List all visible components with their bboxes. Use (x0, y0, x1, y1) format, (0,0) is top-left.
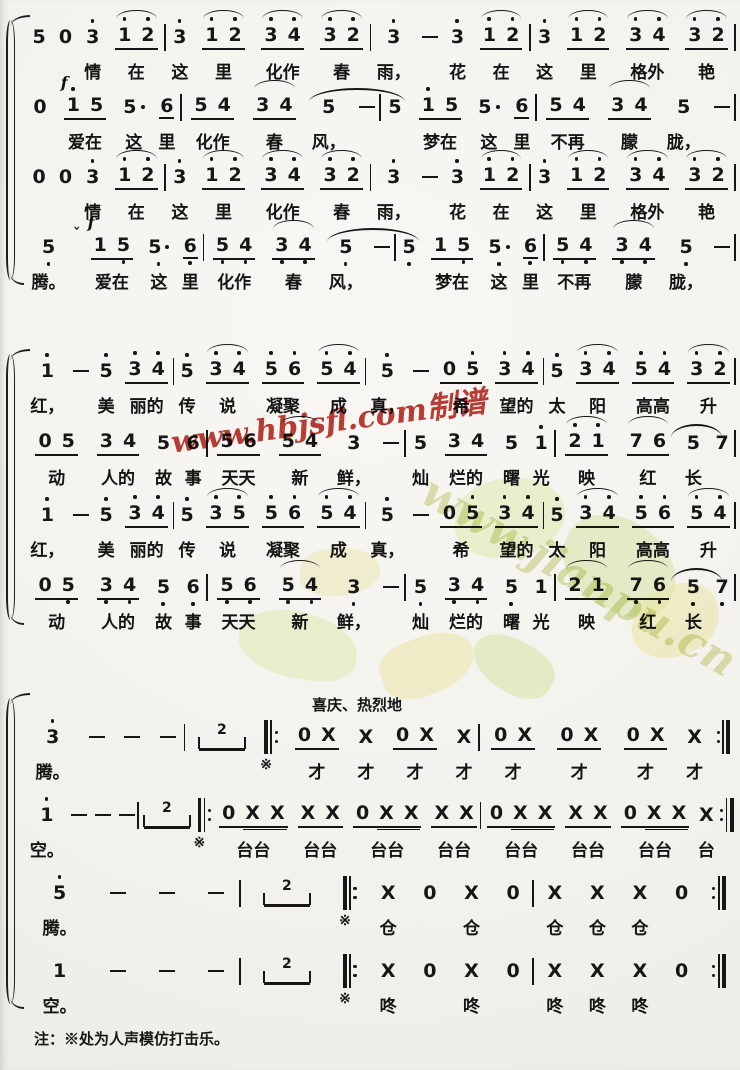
note: 4 (151, 358, 166, 380)
measure: 54不再34朦5胧， (537, 86, 736, 152)
note: 3 (99, 430, 114, 452)
lyric-syllable: 胧， (667, 128, 701, 152)
note-slot: 05动 (26, 566, 87, 632)
measure: 5传34说56凝聚54成 (174, 350, 366, 416)
note-slot: ※ (258, 716, 283, 782)
note-slot: 5美 (93, 350, 119, 416)
note-slot: 54成 (311, 350, 366, 416)
lyric-syllable: 台台 (303, 836, 337, 860)
note-slot: X才 (679, 716, 711, 782)
note: X (646, 802, 663, 824)
measure: 5真，05希34望的 (366, 350, 544, 416)
note: 6 (287, 358, 302, 380)
octave-dot-above (328, 17, 332, 21)
note: 1 (204, 24, 219, 46)
note: 3 (628, 24, 643, 46)
note: 4 (638, 234, 653, 256)
octave-dot-above (543, 159, 547, 163)
note: 4 (602, 502, 617, 524)
staff-line-2-2: 05动34人的5故6事56天天54新3鲜，5灿34烂的5曙1光21映76红5长7 (26, 422, 736, 488)
note: 0 (559, 724, 574, 746)
note: 2 (592, 164, 607, 186)
lyric-syllable: 咚 (589, 992, 606, 1016)
note-slot: 2 (241, 872, 333, 938)
note-slot: 1红， (26, 350, 69, 416)
note: 5 (444, 94, 459, 116)
note: 4 (657, 358, 672, 380)
note: 3 (689, 358, 704, 380)
beam-group: 54 (632, 358, 674, 384)
octave-dot-above (663, 495, 667, 499)
augmentation-dot (141, 105, 145, 109)
octave-dot-above (716, 157, 720, 161)
measure: 3雨，3花12在 (371, 16, 530, 82)
note-slot: 1光 (526, 566, 556, 632)
note-slot: 0X才 (382, 716, 448, 782)
octave-dot-below (248, 600, 252, 604)
staff-line-3-3: 5腾。2※X仓0X仓0X仓X仓X仓0 (26, 872, 736, 938)
note: X (433, 802, 450, 824)
beam-group-slurred: 34 (206, 358, 248, 384)
continuation-dash (159, 970, 175, 973)
beam-group-slurred: 34 (626, 164, 668, 190)
lyric-syllable: 里 (215, 198, 232, 222)
note: X (516, 724, 533, 746)
note: 2 (505, 24, 520, 46)
note: 4 (304, 574, 319, 596)
lyric-syllable: 太 (548, 392, 565, 416)
note-slot (192, 950, 241, 1016)
note: 7 (629, 430, 644, 452)
lyric-syllable: 台台 (437, 836, 471, 860)
beam-group: 0XX (621, 802, 690, 828)
note: 3 (610, 94, 625, 116)
note: 6 (185, 576, 200, 598)
octave-dot-below (691, 602, 695, 606)
note: 4 (578, 234, 593, 256)
octave-dot-below (509, 602, 513, 606)
note: 3 (386, 166, 401, 188)
note: X (671, 802, 688, 824)
note: 1 (117, 24, 132, 46)
beam-group: 0X (557, 724, 601, 750)
lyric-syllable: 台台 (236, 836, 270, 860)
lyric-syllable: 新 (291, 464, 308, 488)
note-slot: 5这 (471, 86, 507, 152)
note: 3 (450, 166, 465, 188)
octave-dot-above (328, 157, 332, 161)
note-slot (409, 494, 434, 560)
lyric-syllable: 这 (480, 128, 497, 152)
note: 5 (122, 96, 145, 118)
note: 4 (278, 94, 293, 116)
lyric-syllable: 真， (370, 536, 404, 560)
note-slot: 54新 (269, 422, 330, 488)
score: 503情12在3这12里34化作32春3雨，3花12在3这12里34格外32艳0… (0, 0, 740, 1016)
note: 5 (61, 430, 76, 452)
rest-count: 2 (282, 879, 292, 893)
note: 5 (549, 360, 564, 382)
octave-dot-above (348, 495, 352, 499)
measure: 0X才0X才0X才X才 (480, 716, 736, 782)
beam-group-slurred: 12 (202, 164, 244, 190)
lyric-syllable: 说 (219, 536, 236, 560)
note-slot (711, 716, 736, 782)
octave-dot-below (643, 260, 647, 264)
note: 0 (37, 574, 52, 596)
note-slot: 2 (185, 716, 258, 782)
note: 2 (227, 24, 242, 46)
octave-dot-above (293, 495, 297, 499)
note: 0 (297, 724, 312, 746)
note: 5 (41, 236, 56, 258)
note: 1 (93, 234, 108, 256)
note: 0 (623, 802, 638, 824)
note: 1 (533, 576, 548, 598)
note: 0 (58, 166, 73, 188)
measure: 1空。 (26, 950, 241, 1016)
octave-dot-below (658, 600, 662, 604)
note-slot: 34望的 (489, 494, 544, 560)
lyric-syllable: 长 (685, 464, 702, 488)
note: 5 (456, 234, 471, 256)
note: 5 (548, 94, 563, 116)
octave-dot-above (693, 17, 697, 21)
octave-dot-above (695, 351, 699, 355)
lyric-syllable: 烂的 (449, 608, 483, 632)
octave-dot-above (503, 351, 507, 355)
lyric-syllable: 凝聚 (266, 536, 300, 560)
beam-group: 0X (393, 724, 437, 750)
note: 0 (355, 802, 370, 824)
note: 5 (686, 432, 701, 454)
note: 5 (487, 236, 510, 258)
note: 5 (380, 504, 395, 526)
lyric-syllable: 里 (182, 268, 199, 292)
tempo-marking: 喜庆、热烈地 (312, 694, 736, 713)
reference-mark: ※ (194, 834, 206, 851)
lyric-syllable: 人的 (101, 464, 135, 488)
rest-count: 2 (162, 801, 172, 815)
music-system-3: 喜庆、热烈地3腾。2※0X才X才0X才X才0X才0X才0X才X才1空。2※0XX… (0, 694, 740, 1016)
note: 6 (514, 95, 529, 119)
note-slot: 35说 (200, 494, 255, 560)
note: 3 (127, 502, 142, 524)
octave-dot-below (221, 260, 225, 264)
note-slot: 0X才 (612, 716, 678, 782)
note-slot: 34阳 (570, 350, 625, 416)
lyric-syllable: 事 (185, 464, 202, 488)
staff-line-3-1: 3腾。2※0X才X才0X才X才0X才0X才0X才X才 (26, 716, 736, 782)
note: 5 (387, 96, 402, 118)
note-slot: 21映 (556, 422, 617, 488)
note-slot: 0XX台台 (615, 794, 695, 860)
note-slot (79, 716, 114, 782)
measure: 05动34人的5故6事 (26, 566, 208, 632)
note-slot: 7 (708, 422, 736, 488)
note-slot: 32艳 (677, 156, 736, 222)
octave-dot-above (210, 17, 214, 21)
beam-group: 0X (491, 724, 535, 750)
note: 5 (89, 94, 104, 116)
note: 5 (689, 502, 704, 524)
note-slot (352, 86, 381, 152)
beam-group: 54 (191, 94, 233, 120)
continuation-dash (89, 736, 105, 739)
lyric-syllable: 春 (285, 268, 302, 292)
measure: 5腾。ˇf15爱在5这6里 (26, 226, 204, 292)
beam-group-slurred: 12 (480, 24, 522, 50)
lyric-syllable: 人的 (101, 608, 135, 632)
octave-dot-above (178, 19, 182, 23)
lyric-syllable: 腾。 (43, 914, 77, 938)
lyric-syllable: 在 (128, 58, 145, 82)
lyric-syllable: 才 (456, 758, 473, 782)
lyric-syllable: 高高 (636, 536, 670, 560)
lyric-syllable: 这 (536, 198, 553, 222)
lyric-syllable: 台台 (571, 836, 605, 860)
note: 3 (85, 166, 100, 188)
lyric-syllable: 才 (505, 758, 522, 782)
note: X (686, 726, 703, 748)
note-slot: 3花 (443, 156, 471, 222)
beam-group: 05 (440, 358, 482, 384)
beam-group-slurred: 34 (261, 24, 303, 50)
measure: 3这12里34化作32春 (166, 16, 371, 82)
note: 2 (592, 24, 607, 46)
note: 5 (232, 502, 247, 524)
reference-mark: ※ (339, 990, 351, 1007)
note: 3 (263, 24, 278, 46)
octave-dot-below (310, 600, 314, 604)
sixteenth-subgroup: XX (512, 802, 553, 824)
continuation-dash (110, 970, 126, 973)
note: X (378, 802, 395, 824)
octave-dot-above (503, 495, 507, 499)
octave-dot-above (657, 157, 661, 161)
note-slot: 34望的 (489, 350, 544, 416)
rest-count: 2 (217, 723, 227, 737)
note: 6 (287, 502, 302, 524)
note: 5 (477, 96, 500, 118)
octave-dot-above (526, 495, 530, 499)
note: X (589, 960, 606, 982)
lyric-syllable: 雨， (377, 58, 411, 82)
note: 4 (217, 94, 232, 116)
note: 3 (450, 26, 465, 48)
note: 5 (413, 576, 428, 598)
note: 5 (264, 358, 279, 380)
note-slot (192, 872, 241, 938)
note-slot: 1空。 (26, 950, 93, 1016)
continuation-dash (383, 586, 399, 589)
octave-dot-above (351, 157, 355, 161)
note-slot: 1空。 (26, 794, 68, 860)
lyric-syllable: 台台 (370, 836, 404, 860)
note-slot: f15爱在 (82, 226, 141, 292)
note: 1 (40, 504, 55, 526)
note: 1 (433, 234, 448, 256)
continuation-dash (714, 106, 730, 109)
beam-group: 34 (125, 502, 167, 528)
note: 4 (651, 24, 666, 46)
note: 5 (678, 236, 693, 258)
continuation-dash (383, 442, 399, 445)
note: 3 (578, 358, 593, 380)
octave-dot-above (639, 495, 643, 499)
note-slot: X咚 (534, 950, 577, 1016)
beam-group: 05 (35, 574, 77, 600)
note: 4 (342, 358, 357, 380)
note-slot: 34朦 (599, 86, 661, 152)
measure: 5太34阳54高高32升 (544, 350, 736, 416)
note: X (632, 960, 649, 982)
note-slot: 5胧， (660, 86, 707, 152)
note-slot: XX台台 (427, 794, 481, 860)
continuation-dash (208, 892, 224, 895)
octave-dot-below (66, 600, 70, 604)
note: 3 (537, 26, 552, 48)
octave-dot-above (639, 351, 643, 355)
beam-group: XX (431, 802, 476, 828)
note-slot: 6事 (178, 422, 208, 488)
measure: 5灿34烂的5曙1光 (406, 422, 556, 488)
note-slot: 3雨， (371, 156, 416, 222)
note: 5 (555, 234, 570, 256)
note-slot (409, 350, 434, 416)
lyric-syllable: 春 (266, 128, 283, 152)
octave-dot-above (292, 17, 296, 21)
lyric-syllable: 这 (491, 268, 508, 292)
note-slot: 5灿 (406, 422, 436, 488)
multimeasure-rest: 2 (264, 957, 310, 985)
note-slot: 5腾。 (26, 872, 93, 938)
note: X (456, 726, 473, 748)
octave-dot-above (348, 351, 352, 355)
lyric-syllable: 美 (98, 392, 115, 416)
note-slot: ※ (195, 794, 213, 860)
note: 4 (651, 164, 666, 186)
octave-dot-above (237, 351, 241, 355)
beam-group: 34 (97, 574, 139, 600)
beam-group: 54 (553, 234, 595, 260)
note-slot: 5美 (93, 494, 119, 560)
note-slot: 12在 (472, 16, 531, 82)
octave-dot-above (607, 495, 611, 499)
measure: 54化作34春5风， (204, 226, 395, 292)
note: 5 (32, 26, 47, 48)
measure: ※X咚0X咚0 (333, 950, 534, 1016)
octave-dot-above (91, 19, 95, 23)
octave-dot-above (269, 351, 273, 355)
reference-mark: ※ (260, 756, 272, 773)
note: 4 (470, 430, 485, 452)
beam-group: 54 (213, 234, 255, 260)
note: 5 (179, 504, 194, 526)
octave-dot-above (695, 495, 699, 499)
note: 3 (172, 26, 187, 48)
note: X (537, 802, 554, 824)
note: 5 (215, 234, 230, 256)
measure: 54不再34朦5胧， (545, 226, 736, 292)
beam-group: 34 (495, 358, 537, 384)
note: 4 (151, 502, 166, 524)
note-slot: 3鲜， (331, 566, 378, 632)
note-slot (115, 716, 150, 782)
measure: 0f15爱在5这6里 (26, 86, 182, 152)
augmentation-dot (496, 105, 500, 109)
lyric-syllable: 台台 (638, 836, 672, 860)
note-slot: 34烂的 (435, 422, 496, 488)
lyric-syllable: 动 (48, 608, 65, 632)
note-slot: 0 (52, 156, 78, 222)
note: 5 (504, 432, 519, 454)
note: 0 (442, 502, 457, 524)
octave-dot-below (476, 600, 480, 604)
octave-dot-below (286, 600, 290, 604)
lyric-syllable: 说 (219, 392, 236, 416)
footnote: 注：※处为人声模仿打击乐。 (34, 1028, 740, 1049)
note-slot: 5真， (366, 350, 409, 416)
note-slot: 6里 (152, 86, 182, 152)
note-slot: 0 (493, 950, 534, 1016)
octave-dot-below (620, 260, 624, 264)
lyric-syllable: 丽的 (130, 392, 164, 416)
measure: 05动34人的5故6事 (26, 422, 208, 488)
beam-group: 15 (431, 234, 473, 260)
note-slot: 12里 (194, 16, 253, 82)
note-slot: 54新 (269, 566, 330, 632)
lyric-syllable: 咚 (380, 992, 397, 1016)
note: 1 (591, 430, 606, 452)
note-slot: 12里 (559, 156, 618, 222)
note-slot: 56天天 (208, 566, 269, 632)
note: X (358, 726, 375, 748)
repeat-end-barline (712, 876, 726, 910)
beam-group: XX (565, 802, 610, 828)
beam-group-slurred: 34 (576, 502, 618, 528)
repeat-start-barline: ※ (343, 954, 357, 988)
continuation-dash (159, 892, 175, 895)
octave-dot-below (188, 261, 192, 265)
lyric-syllable: 爱在 (68, 128, 102, 152)
note: X (463, 882, 480, 904)
note-slot: 34化作 (253, 16, 312, 82)
octave-dot-above (392, 19, 396, 23)
note: 6 (523, 235, 538, 259)
note-slot: 5灿 (406, 566, 436, 632)
lyric-syllable: 光 (533, 608, 550, 632)
beam-group-slurred: 35 (206, 502, 248, 528)
measure: 515梦在5这6里 (396, 226, 545, 292)
note-slot (416, 16, 443, 82)
note-slot: 0XX台台 (481, 794, 561, 860)
beam-group: 0XX (219, 802, 288, 828)
octave-dot-above (584, 351, 588, 355)
note-slot: 0 (493, 872, 534, 938)
note-slot: f15爱在 (54, 86, 116, 152)
octave-dot-above (555, 497, 559, 501)
note-slot (377, 566, 406, 632)
note: 4 (287, 24, 302, 46)
measure: 3腾。 (26, 716, 185, 782)
lyric-syllable: 化作 (217, 268, 251, 292)
lyric-syllable: 太 (548, 536, 565, 560)
continuation-dash (422, 36, 438, 39)
octave-dot-above (45, 797, 49, 801)
note-slot: 0 (661, 950, 702, 1016)
note: 4 (298, 234, 313, 256)
